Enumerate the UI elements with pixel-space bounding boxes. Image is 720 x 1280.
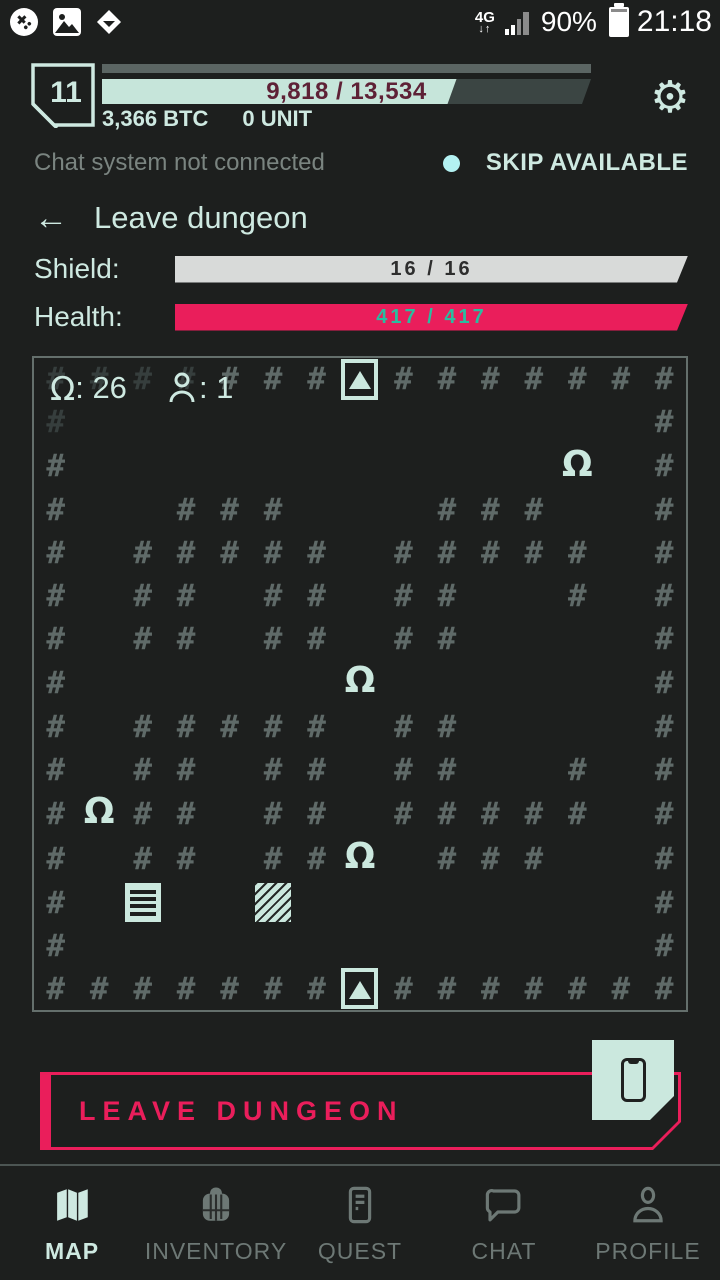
map-legend: Ω : 26 : 1 [50,368,233,408]
map-cell-wall: # [295,532,338,575]
map-cell-wall: # [295,358,338,401]
map-cell-wall: # [425,791,468,836]
map-cell-wall: # [556,791,599,836]
nav-label-quest: QUEST [318,1238,402,1265]
map-cell-empty [382,836,425,881]
map-cell-empty [295,881,338,924]
map-cell-wall: # [34,575,77,618]
map-cell-empty [425,401,468,444]
map-cell-empty [425,881,468,924]
map-cell-empty [121,489,164,532]
map-cell-wall: # [556,358,599,401]
map-cell-empty [512,660,555,705]
map-cell-empty [338,489,381,532]
map-cell-empty [338,575,381,618]
map-cell-empty [512,881,555,924]
map-cell-empty [512,705,555,748]
map-cell-wall: # [382,618,425,661]
map-cell-wall: # [208,967,251,1010]
map-cell-empty [295,444,338,489]
map-cell-empty [295,924,338,967]
map-cell-wall: # [251,532,294,575]
map-cell-wall: # [121,618,164,661]
map-cell-empty [599,660,642,705]
map-cell-empty [469,748,512,791]
map-cell-empty [208,881,251,924]
map-cell-wall: # [556,967,599,1010]
map-cell-wall: # [643,924,686,967]
map-cell-empty [251,924,294,967]
map-cell-wall: # [164,575,207,618]
player-count: : 1 [199,370,233,406]
map-cell-wall: # [425,618,468,661]
map-cell-wall: # [643,401,686,444]
map-cell-empty [556,881,599,924]
map-cell-empty [208,924,251,967]
map-cell-empty [599,532,642,575]
map-cell-wall: # [77,967,120,1010]
map-cell-wall: # [251,967,294,1010]
map-cell-empty [382,881,425,924]
gallery-icon [52,7,82,37]
map-cell-empty [338,532,381,575]
map-cell-monster[interactable]: Ω [338,836,381,881]
level-badge: 11 [30,62,96,128]
leave-dungeon-label: LEAVE DUNGEON [51,1096,404,1127]
diamond-widget-icon [94,7,124,37]
map-cell-empty [469,705,512,748]
map-cell-empty [512,575,555,618]
map-cell-wall: # [469,358,512,401]
backpack-icon [193,1182,239,1228]
map-cell-empty [556,489,599,532]
map-cell-empty [556,924,599,967]
map-cell-empty [208,836,251,881]
map-cell-empty [556,705,599,748]
map-cell-empty [338,748,381,791]
map-cell-wall: # [382,791,425,836]
map-cell-wall: # [295,748,338,791]
map-cell-empty [425,444,468,489]
map-cell-wall: # [556,532,599,575]
health-value: 417 / 417 [376,306,486,329]
map-cell-wall: # [643,748,686,791]
map-cell-empty [382,489,425,532]
map-cell-wall: # [643,358,686,401]
map-cell-empty [469,575,512,618]
currency-row: 3,366 BTC 0 UNIT [102,106,312,132]
map-cell-wall: # [251,705,294,748]
skip-available[interactable]: SKIP AVAILABLE [443,149,688,177]
map-cell-wall: # [164,836,207,881]
map-cell-empty [77,444,120,489]
monster-icon: Ω [50,369,75,408]
nav-item-quest[interactable]: QUEST [288,1166,432,1280]
network-4g-icon: 4G ↓↑ [475,10,495,35]
map-cell-empty [338,924,381,967]
nav-item-map[interactable]: MAP [0,1166,144,1280]
loot-chest-icon [125,883,161,922]
map-cell-wall: # [34,532,77,575]
chat-bubble-icon [481,1182,527,1228]
map-cell-empty [469,618,512,661]
map-cell-wall: # [295,967,338,1010]
map-cell-empty [338,618,381,661]
map-cell-empty [338,791,381,836]
map-cell-empty [599,444,642,489]
map-cell-empty [382,924,425,967]
map-cell-empty [469,924,512,967]
back-arrow-icon[interactable]: ← [34,201,68,235]
map-cell-wall: # [251,358,294,401]
map-cell-wall: # [382,532,425,575]
map-cell-empty [77,924,120,967]
map-cell-empty [295,401,338,444]
map-cell-wall: # [599,967,642,1010]
map-cell-empty [164,660,207,705]
map-cell-empty [77,660,120,705]
profile-person-icon [625,1182,671,1228]
map-cell-wall: # [512,791,555,836]
quest-scroll-icon [337,1182,383,1228]
status-bar-right: 4G ↓↑ 90% 21:18 [475,5,712,39]
map-cell-wall: # [121,967,164,1010]
skip-dot-icon [443,155,460,172]
nav-item-chat[interactable]: CHAT [432,1166,576,1280]
map-cell-wall: # [121,575,164,618]
map-cell-wall: # [251,575,294,618]
map-cell-wall: # [121,532,164,575]
battery-icon [609,7,629,37]
map-cell-empty [164,881,207,924]
map-cell-wall: # [643,836,686,881]
map-cell-wall: # [164,791,207,836]
map-cell-wall: # [164,532,207,575]
map-cell-empty [469,660,512,705]
map-cell-empty [208,791,251,836]
map-cell-monster[interactable]: Ω [77,791,120,836]
nav-label-chat: CHAT [472,1238,537,1265]
map-cell-wall: # [121,836,164,881]
map-cell-empty [121,924,164,967]
map-cell-empty [599,489,642,532]
dungeon-map-viewport[interactable]: #################Ω######################… [32,356,688,1012]
stairs-icon [341,359,378,400]
app-screen: 4G ↓↑ 90% 21:18 11 9,818 / 13,534 3,366 … [0,0,720,1280]
settings-gear-icon[interactable]: ⚙ [646,74,694,122]
map-cell-wall: # [34,748,77,791]
map-cell-wall: # [643,575,686,618]
map-cell-empty [164,444,207,489]
map-cell-wall: # [425,532,468,575]
map-cell-empty [599,575,642,618]
map-cell-empty [338,444,381,489]
map-cell-wall: # [164,748,207,791]
map-cell-empty [295,489,338,532]
map-cell-wall: # [556,748,599,791]
map-cell-wall: # [295,618,338,661]
map-cell-empty [338,705,381,748]
map-cell-empty [599,401,642,444]
map-cell-wall: # [34,967,77,1010]
map-cell-wall: # [425,748,468,791]
map-cell-wall: # [599,358,642,401]
map-cell-wall: # [251,489,294,532]
map-cell-wall: # [208,489,251,532]
map-cell-empty [121,660,164,705]
xp-value: 9,818 / 13,534 [102,79,591,104]
nav-item-profile[interactable]: PROFILE [576,1166,720,1280]
map-cell-wall: # [34,489,77,532]
map-cell-empty [469,401,512,444]
map-cell-wall: # [295,705,338,748]
map-cell-stairs[interactable] [338,967,381,1010]
map-cell-wall: # [643,444,686,489]
map-cell-wall: # [382,705,425,748]
map-cell-wall: # [34,618,77,661]
battery-percent: 90% [541,6,597,38]
map-cell-wall: # [208,532,251,575]
nav-label-inventory: INVENTORY [145,1238,287,1265]
map-cell-wall: # [382,967,425,1010]
map-cell-loot[interactable] [121,881,164,924]
player-icon [167,371,197,405]
map-cell-wall: # [425,705,468,748]
hatch-tile-icon [255,883,291,922]
map-cell-empty [338,401,381,444]
map-cell-empty [164,924,207,967]
map-cell-wall: # [34,444,77,489]
map-cell-wall: # [512,836,555,881]
map-cell-wall: # [469,836,512,881]
clock: 21:18 [637,5,712,39]
map-cell-wall: # [382,748,425,791]
map-cell-wall: # [382,358,425,401]
health-row: Health: 417 / 417 [34,303,688,331]
map-cell-wall: # [512,967,555,1010]
map-cell-wall: # [164,967,207,1010]
map-cell-wall: # [295,791,338,836]
stairs-icon [341,968,378,1009]
map-cell-empty [382,444,425,489]
back-row[interactable]: ← Leave dungeon [34,200,308,236]
map-cell-empty [208,618,251,661]
map-cell-wall: # [469,532,512,575]
map-cell-empty [556,836,599,881]
phone-badge[interactable] [592,1040,674,1120]
map-cell-empty [77,836,120,881]
map-cell-wall: # [251,748,294,791]
health-label: Health: [34,301,175,333]
nav-label-profile: PROFILE [595,1238,700,1265]
monster-count: : 26 [75,370,127,406]
map-cell-wall: # [121,705,164,748]
map-cell-wall: # [512,489,555,532]
map-cell-wall: # [34,881,77,924]
map-cell-empty [251,660,294,705]
nav-item-inventory[interactable]: INVENTORY [144,1166,288,1280]
map-cell-empty [77,532,120,575]
map-cell-empty [208,660,251,705]
map-cell-empty [77,575,120,618]
map-cell-wall: # [382,575,425,618]
map-cell-empty [512,924,555,967]
game-launcher-icon [8,6,40,38]
map-cell-wall: # [164,705,207,748]
map-cell-empty [425,924,468,967]
map-cell-empty [251,444,294,489]
map-cell-empty [77,489,120,532]
map-cell-empty [208,748,251,791]
map-cell-empty [599,924,642,967]
map-cell-empty [512,444,555,489]
map-cell-wall: # [295,575,338,618]
map-cell-empty [599,705,642,748]
map-cell-wall: # [425,489,468,532]
map-cell-empty [382,660,425,705]
nav-label-map: MAP [45,1238,99,1265]
map-cell-wall: # [643,967,686,1010]
map-cell-empty [556,660,599,705]
map-cell-wall: # [34,660,77,705]
level-number: 11 [30,62,96,128]
btc-amount: 3,366 BTC [102,106,208,132]
map-cell-wall: # [34,836,77,881]
map-cell-empty [251,401,294,444]
health-bar: 417 / 417 [175,304,688,331]
map-cell-wall: # [295,836,338,881]
status-bar: 4G ↓↑ 90% 21:18 [0,0,720,44]
map-cell-hatch[interactable] [251,881,294,924]
map-cell-wall: # [34,705,77,748]
map-cell-wall: # [512,358,555,401]
map-cell-empty [208,444,251,489]
map-cell-empty [425,660,468,705]
map-cell-wall: # [251,836,294,881]
map-cell-wall: # [164,489,207,532]
map-cell-wall: # [469,967,512,1010]
unit-amount: 0 UNIT [242,106,312,132]
shield-value: 16 / 16 [390,258,472,281]
xp-bar-track-thin [102,64,591,73]
map-cell-empty [599,791,642,836]
back-label: Leave dungeon [94,200,308,236]
map-cell-wall: # [251,618,294,661]
map-cell-wall: # [425,836,468,881]
map-cell-empty [382,401,425,444]
chat-status-text: Chat system not connected [34,149,325,177]
shield-row: Shield: 16 / 16 [34,255,688,283]
map-cell-wall: # [251,791,294,836]
map-cell-wall: # [556,575,599,618]
map-cell-wall: # [425,967,468,1010]
map-cell-empty [338,881,381,924]
map-cell-wall: # [425,358,468,401]
map-cell-empty [77,705,120,748]
map-cell-wall: # [643,881,686,924]
map-cell-empty [599,836,642,881]
map-cell-stairs[interactable] [338,358,381,401]
map-cell-monster[interactable]: Ω [338,660,381,705]
map-icon [49,1182,95,1228]
map-cell-empty [512,618,555,661]
map-cell-empty [121,444,164,489]
map-cell-wall: # [643,791,686,836]
map-cell-wall: # [121,791,164,836]
map-cell-empty [512,748,555,791]
signal-strength-icon [503,7,533,37]
map-cell-empty [599,881,642,924]
map-cell-wall: # [643,489,686,532]
map-cell-empty [77,748,120,791]
map-cell-wall: # [34,791,77,836]
shield-label: Shield: [34,253,175,285]
map-cell-empty [599,618,642,661]
map-cell-empty [469,881,512,924]
map-cell-wall: # [469,791,512,836]
map-cell-empty [77,881,120,924]
map-cell-empty [208,575,251,618]
map-cell-empty [599,748,642,791]
map-cell-wall: # [164,618,207,661]
shield-bar: 16 / 16 [175,256,688,283]
map-cell-wall: # [469,489,512,532]
map-cell-wall: # [121,748,164,791]
map-cell-wall: # [643,618,686,661]
phone-icon [621,1058,646,1102]
status-bar-left [8,6,124,38]
map-cell-wall: # [643,705,686,748]
skip-label: SKIP AVAILABLE [486,149,688,177]
map-cell-empty [469,444,512,489]
map-cell-wall: # [425,575,468,618]
map-cell-empty [512,401,555,444]
map-cell-wall: # [643,660,686,705]
map-cell-empty [77,618,120,661]
map-cell-empty [556,401,599,444]
map-grid: #################Ω######################… [34,358,686,1010]
leave-dungeon-button[interactable]: LEAVE DUNGEON [40,1072,681,1150]
map-cell-wall: # [643,532,686,575]
map-cell-wall: # [208,705,251,748]
map-cell-wall: # [34,924,77,967]
map-cell-wall: # [512,532,555,575]
map-cell-empty [556,618,599,661]
map-cell-empty [295,660,338,705]
map-cell-monster[interactable]: Ω [556,444,599,489]
bottom-nav: MAP INVENTORY QUEST [0,1164,720,1280]
